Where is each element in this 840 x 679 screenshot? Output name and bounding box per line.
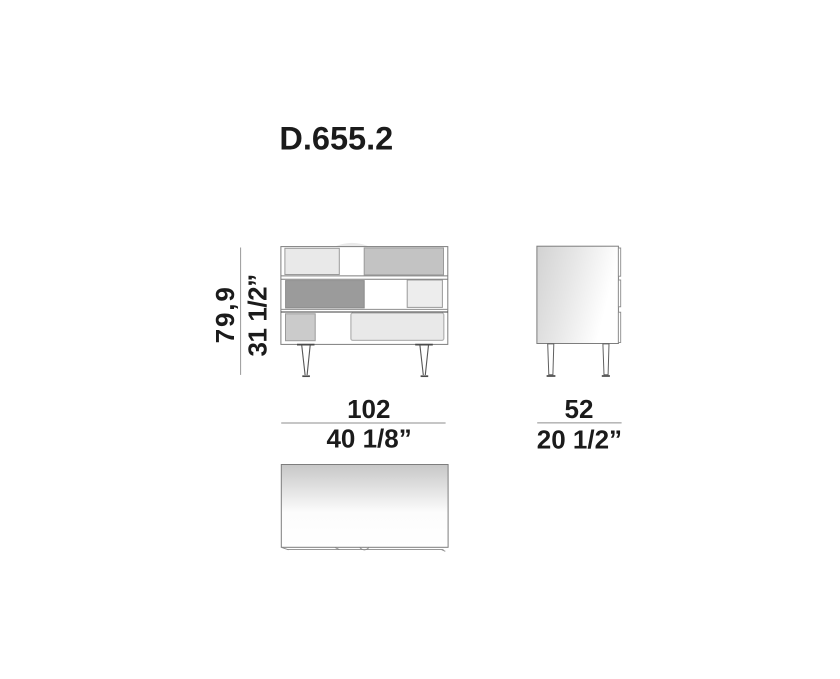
svg-text:52: 52 [565, 394, 594, 424]
svg-text:102: 102 [347, 394, 390, 424]
svg-text:40 1/8”: 40 1/8” [326, 424, 411, 454]
svg-text:31 1/2”: 31 1/2” [242, 274, 272, 356]
svg-text:D.655.2: D.655.2 [279, 121, 393, 157]
svg-text:79,9: 79,9 [210, 285, 240, 343]
svg-text:20 1/2”: 20 1/2” [537, 425, 622, 455]
